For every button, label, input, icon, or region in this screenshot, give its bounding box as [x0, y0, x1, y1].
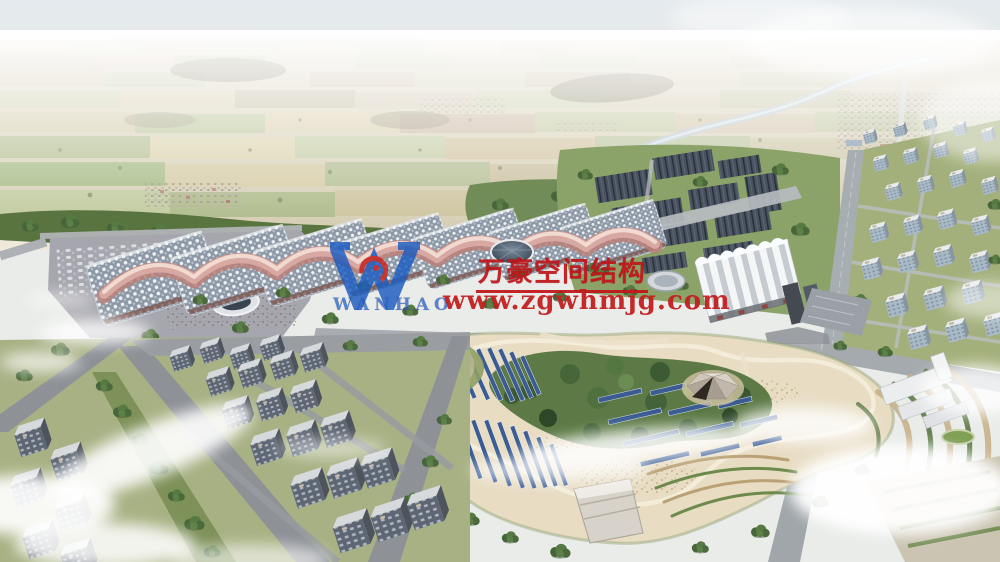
green-oval — [942, 430, 974, 444]
watermark-url: www.zgwhmjg.com — [443, 286, 731, 316]
small-cone-tent — [682, 370, 744, 406]
aerial-rendering: WANHAO 万豪空间结构 www.zgwhmjg.com — [0, 0, 1000, 562]
